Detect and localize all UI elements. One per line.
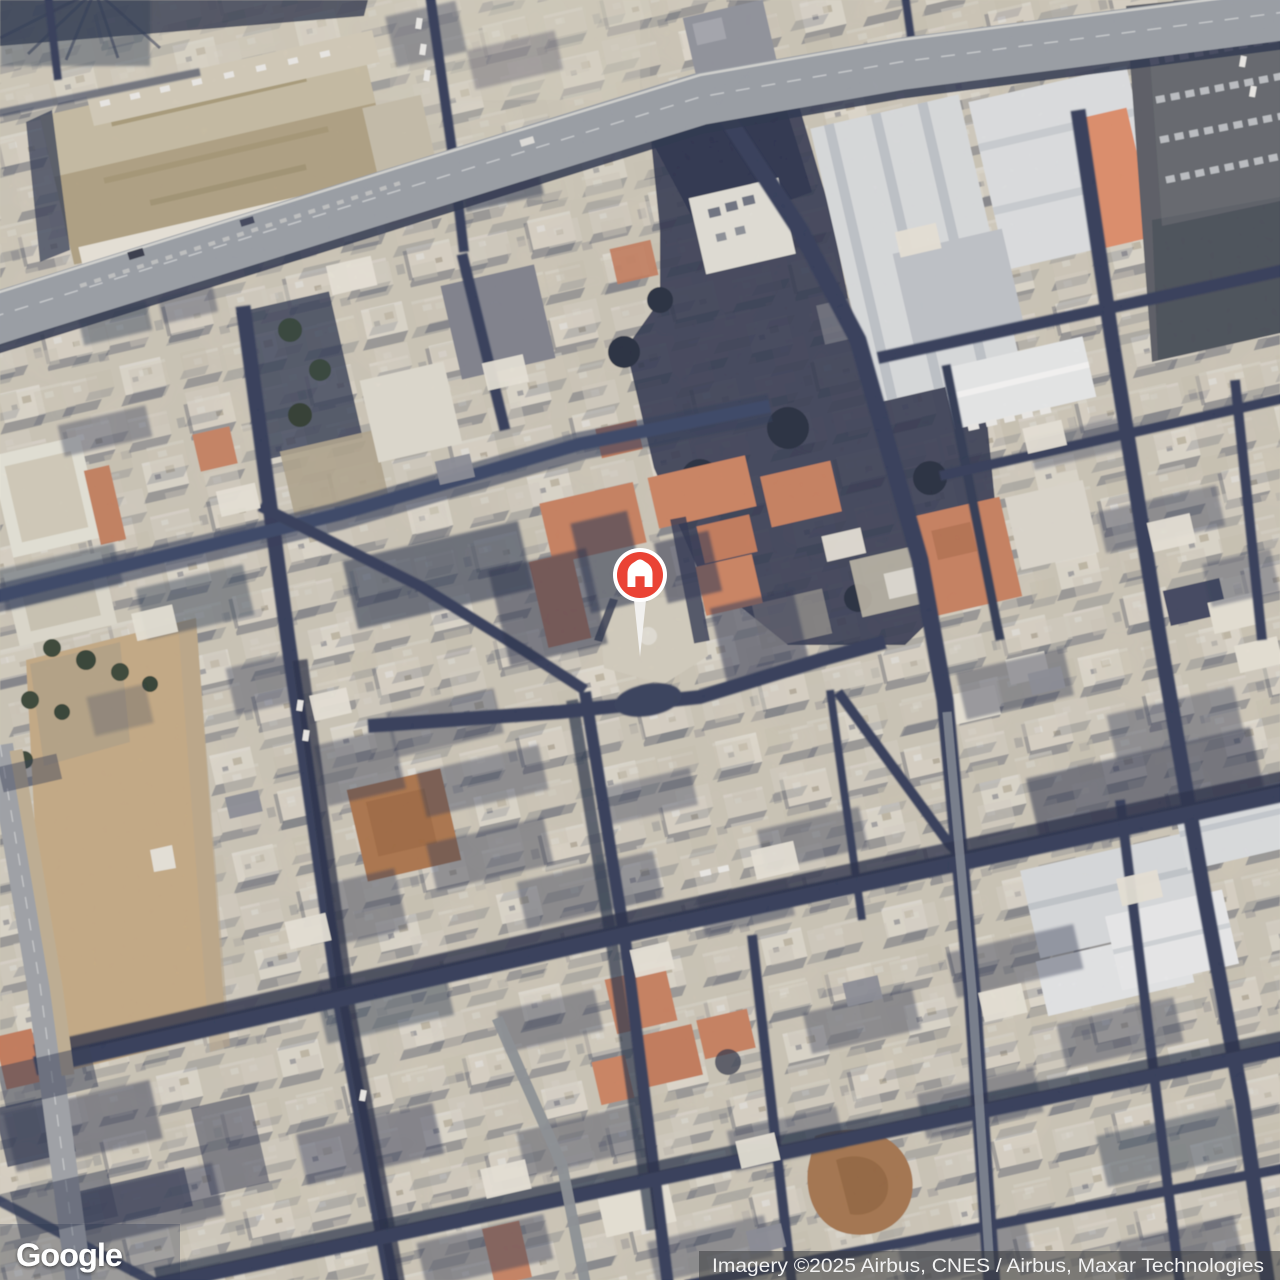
svg-text:Imagery ©2025 Airbus, CNES / A: Imagery ©2025 Airbus, CNES / Airbus, Max… bbox=[712, 1255, 1264, 1277]
svg-text:Google: Google bbox=[16, 1237, 122, 1273]
